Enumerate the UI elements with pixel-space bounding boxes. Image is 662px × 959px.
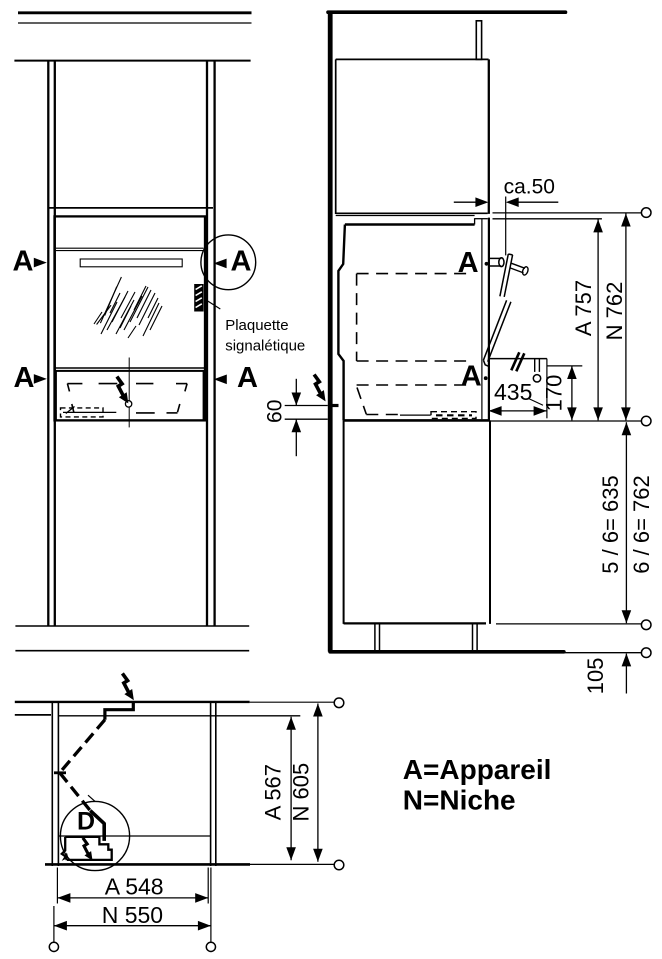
svg-text:5 / 6= 635: 5 / 6= 635 — [598, 475, 623, 573]
svg-text:105: 105 — [583, 658, 608, 695]
svg-text:435: 435 — [494, 379, 532, 405]
svg-text:60: 60 — [264, 400, 287, 423]
svg-text:170: 170 — [542, 375, 567, 412]
svg-text:A: A — [13, 245, 34, 277]
svg-text:A: A — [458, 247, 479, 279]
svg-text:A 548: A 548 — [105, 873, 164, 899]
svg-text:N=Niche: N=Niche — [403, 785, 516, 816]
svg-text:A: A — [14, 362, 35, 394]
svg-text:Plaquette: Plaquette — [225, 317, 288, 334]
svg-text:N 550: N 550 — [102, 902, 163, 928]
svg-text:signalétique: signalétique — [225, 338, 305, 355]
svg-text:6 / 6= 762: 6 / 6= 762 — [629, 475, 654, 573]
svg-text:A 757: A 757 — [571, 280, 596, 336]
svg-text:A=Appareil: A=Appareil — [403, 754, 552, 785]
svg-text:D: D — [77, 807, 95, 835]
svg-text:N 762: N 762 — [602, 282, 627, 341]
svg-text:A 567: A 567 — [261, 764, 286, 820]
svg-text:A: A — [237, 362, 258, 394]
svg-text:A: A — [231, 246, 252, 278]
svg-text:A: A — [461, 360, 482, 392]
svg-text:ca.50: ca.50 — [504, 175, 555, 198]
svg-text:N 605: N 605 — [289, 763, 314, 822]
